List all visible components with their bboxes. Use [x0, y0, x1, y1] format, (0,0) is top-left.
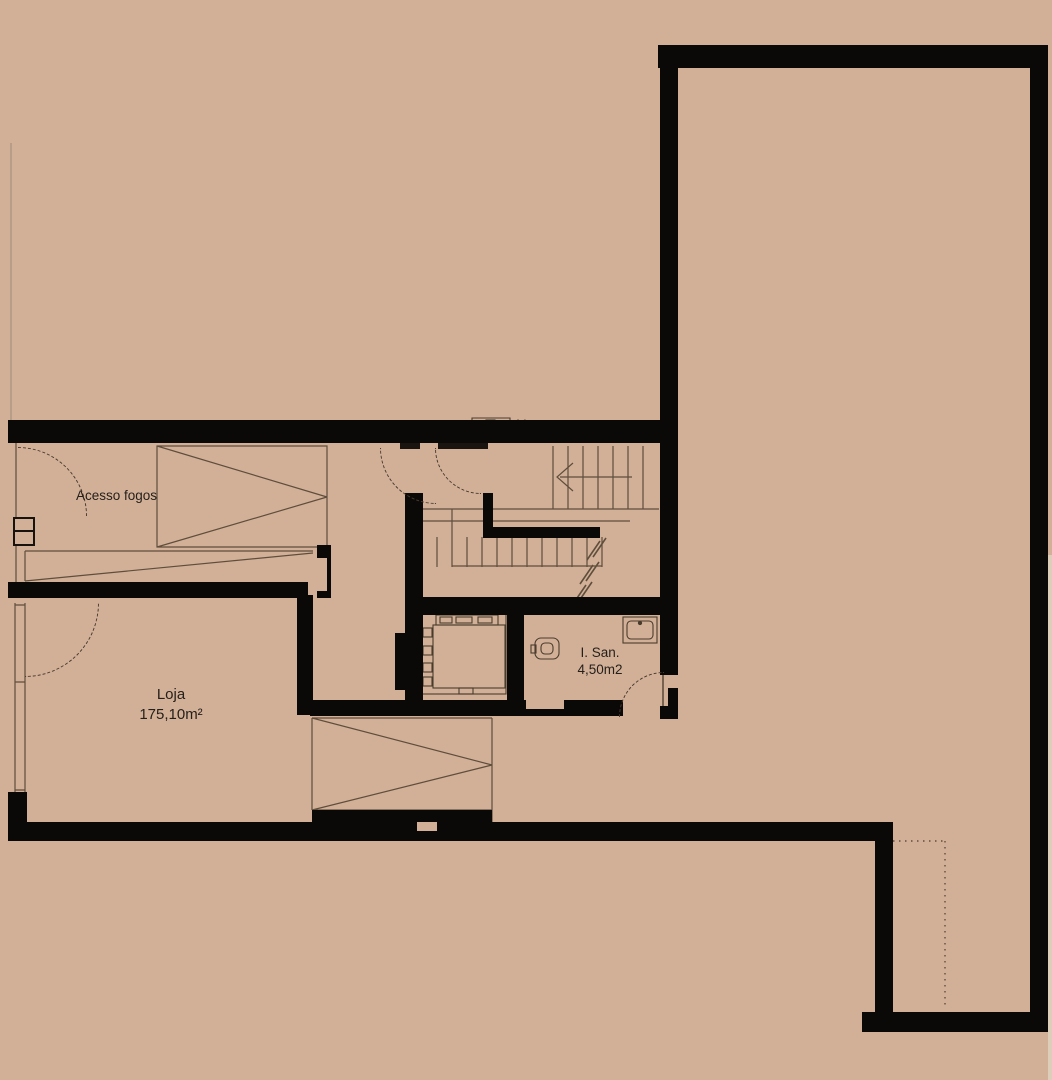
wall-right-exterior [1030, 45, 1048, 1032]
wall-left-main-room [660, 45, 678, 675]
wall-yard-bottom [862, 1012, 1048, 1032]
stair-break-marks [573, 538, 606, 604]
stair-direction-arrow [557, 463, 632, 491]
wall-notch-bottom-long [417, 822, 437, 831]
wall-corridor-top [8, 420, 660, 443]
wall-notch-core-bottom [526, 700, 564, 709]
ramp-wedge-lower [25, 551, 313, 581]
label-fire-access: Acesso fogos [76, 488, 157, 503]
wall-yard-left [875, 841, 893, 1016]
plan-linework [0, 0, 1052, 1080]
stair-landing-lines [423, 509, 659, 521]
elevator-car [420, 613, 506, 694]
ramp-wedge-south [312, 718, 492, 822]
wall-elevator-jamb [395, 633, 405, 690]
scan-edge-artifact [1048, 555, 1052, 1080]
label-wc-name: I. San. [550, 644, 650, 661]
wall-under-ramp [312, 810, 492, 824]
label-shop-area: 175,10m² [116, 705, 226, 725]
overhead-dotted-outline [893, 841, 945, 1008]
floor-plan: Acesso fogos Loja 175,10m² I. San. 4,50m… [0, 0, 1052, 1080]
wall-bottom-long [8, 822, 893, 841]
wall-corridor-shop-divider [8, 582, 308, 598]
label-shop-name: Loja [116, 685, 226, 705]
wall-wc-door-jamb [668, 688, 678, 708]
sink-fixture [623, 617, 657, 643]
label-wc: I. San. 4,50m2 [550, 644, 650, 678]
label-shop: Loja 175,10m² [116, 685, 226, 725]
wall-notch-corridor-stub [317, 558, 327, 591]
label-wc-area: 4,50m2 [550, 661, 650, 678]
wall-stair-newel-horizontal [483, 527, 600, 538]
wall-core-bottom [310, 700, 623, 716]
wall-shop-right [297, 595, 313, 715]
wall-stair-bottom [417, 597, 678, 615]
utility-box-symbol [14, 518, 34, 545]
wall-top-main-room [658, 45, 1048, 68]
storefront-window-line [15, 603, 25, 792]
ramp-wedge-corridor [157, 446, 327, 547]
stair-treads-lower [437, 509, 602, 567]
wall-elevator-wc-divider [507, 613, 524, 700]
